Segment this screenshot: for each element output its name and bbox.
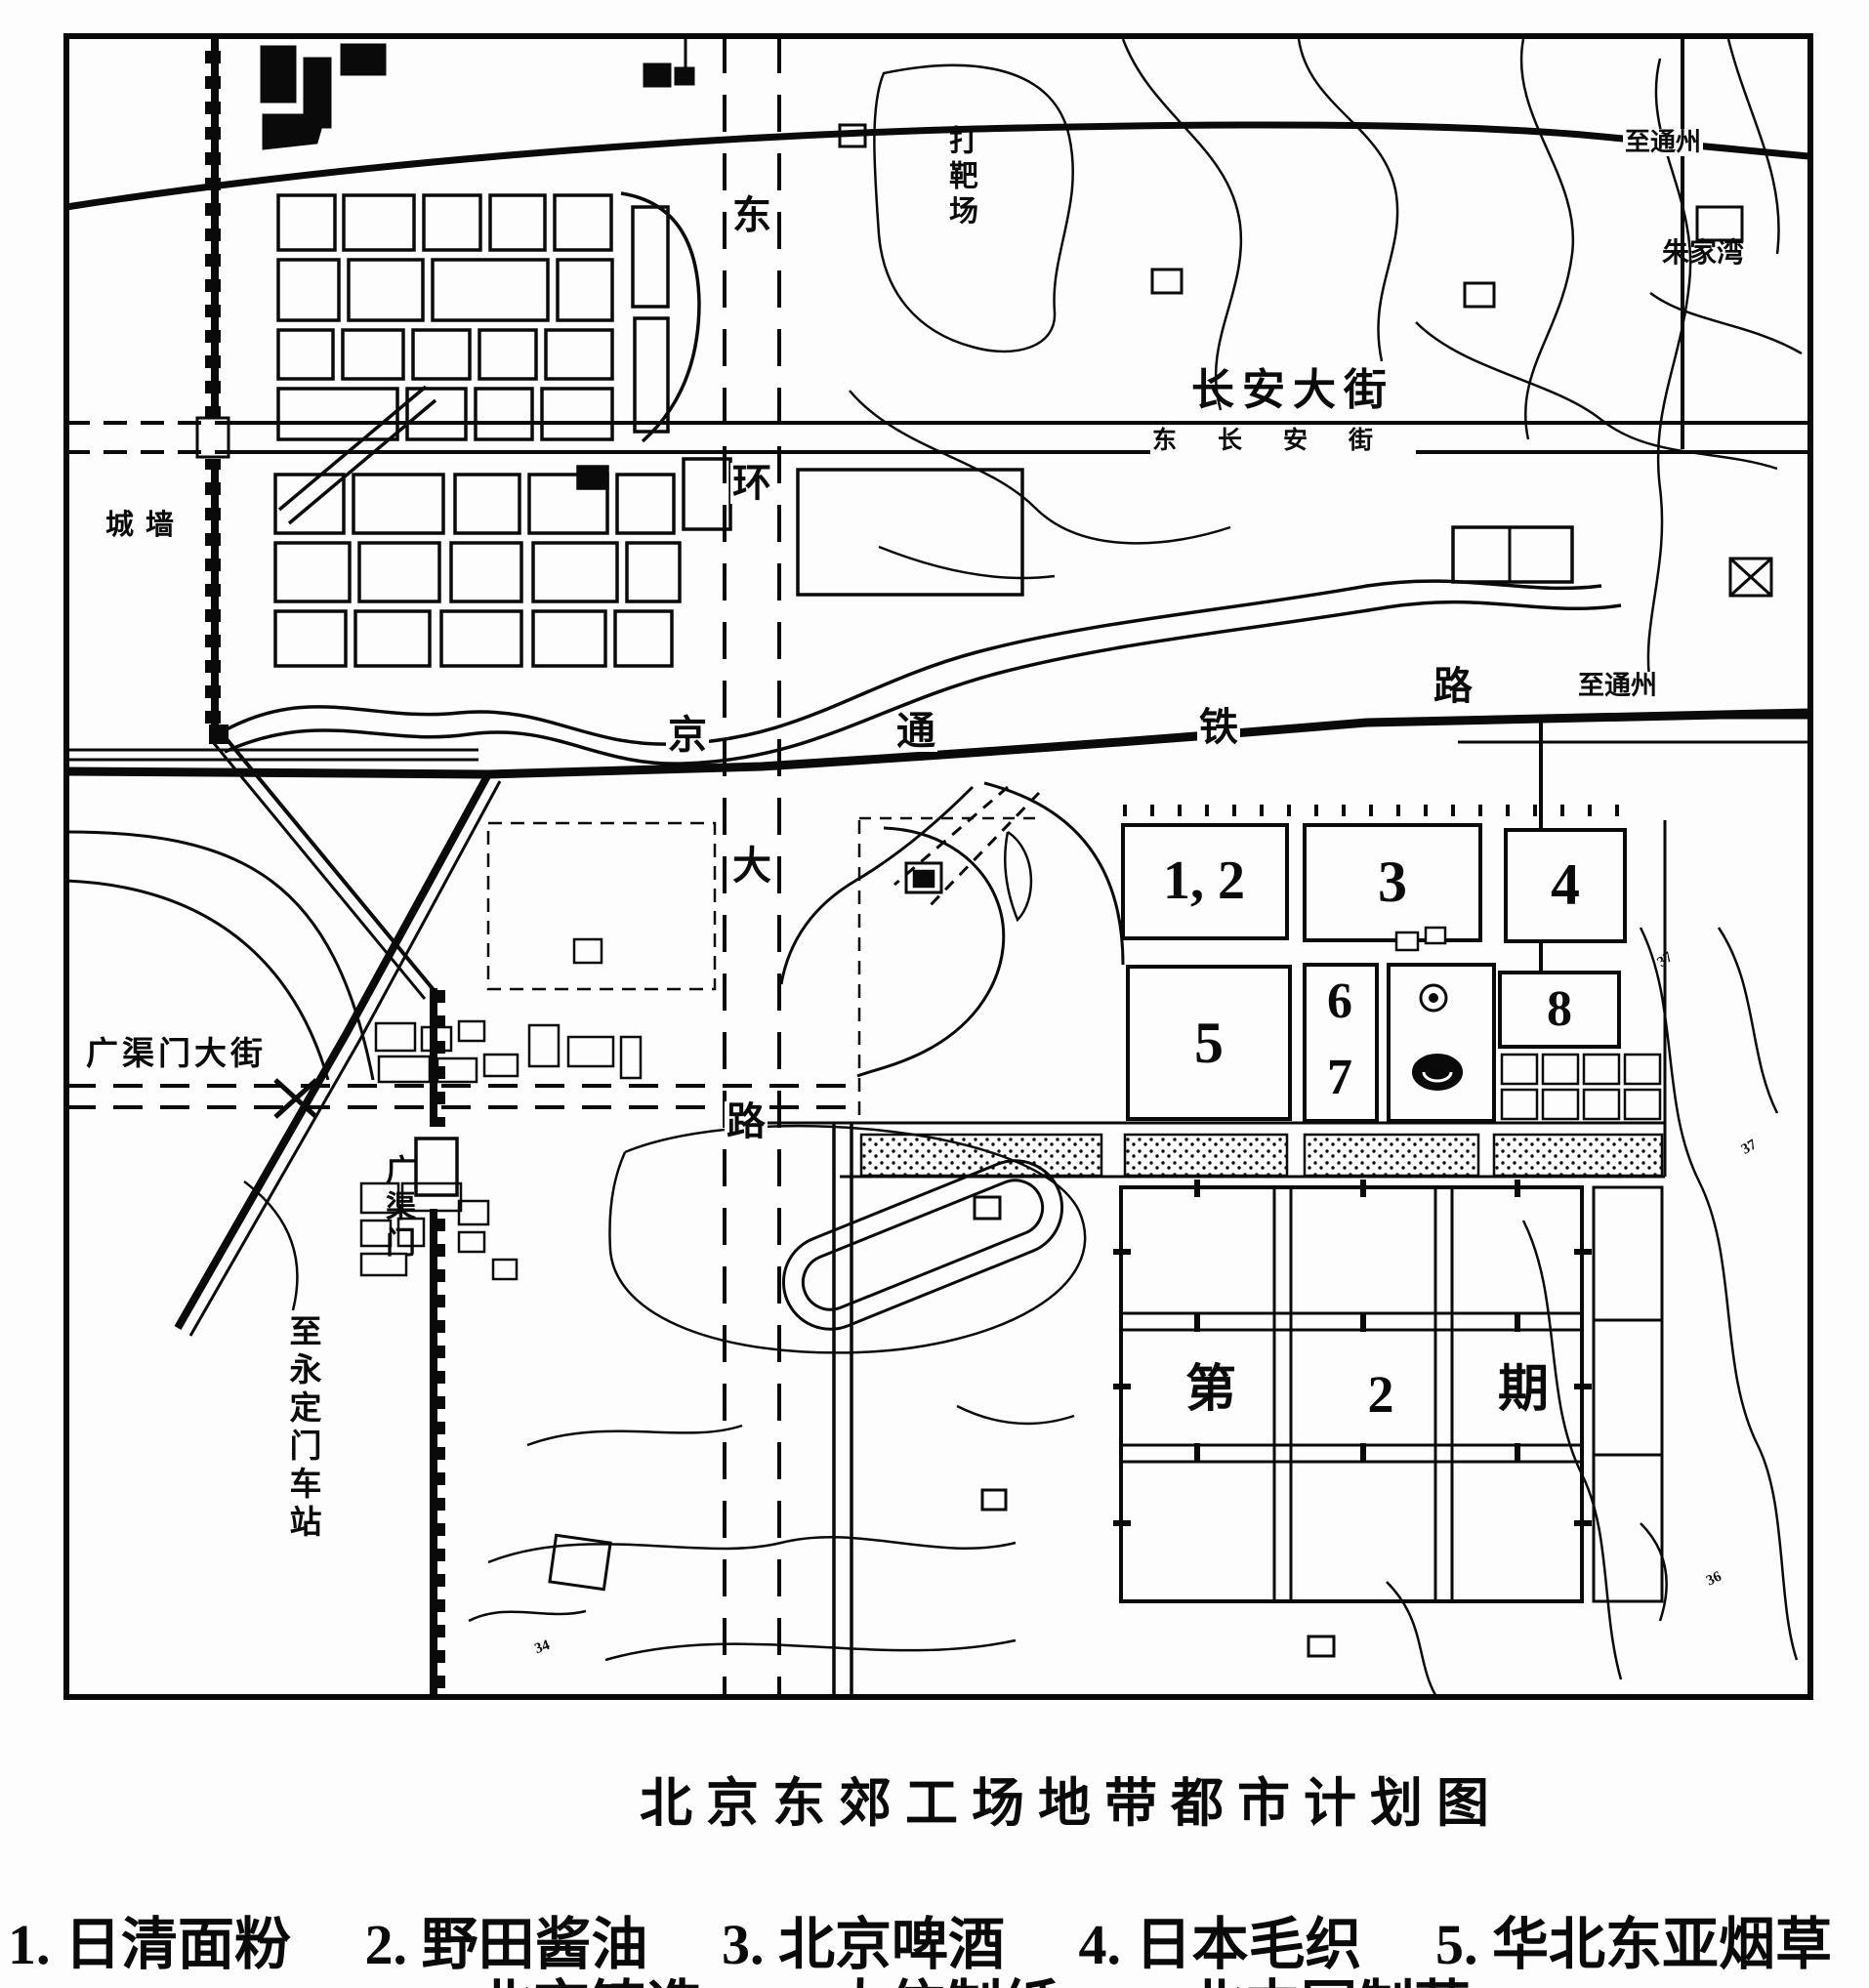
label-to-tongzhou-top: 至通州 [1623,129,1703,156]
label-zhujiawan: 朱家湾 [1662,240,1744,268]
label-changan-avenue: 长安大街 [1191,369,1394,412]
lot-number-6: 6 [1327,976,1352,1027]
label-railway-char-tong: 通 [894,711,937,752]
lot-number-1-2: 1, 2 [1163,853,1245,908]
legend-item-5: 5. 华北东亚烟草 [1435,1898,1832,1980]
legend-row-2: 6. 北京铸造 7. 大信制纸 8. 北中国制药 [420,1961,1471,1988]
lot-number-3: 3 [1378,852,1407,911]
label-guangqumen-avenue: 广渠门大街 [86,1039,267,1071]
label-ring-road-char-lu: 路 [725,1101,768,1142]
lot-number-7: 7 [1327,1053,1352,1103]
scanned-map-page: 至通州 朱家湾 长安大街 东长安街 城墙 打靶场 东 环 大 路 京 通 铁 路… [0,0,1869,1988]
phase2-char-qi: 期 [1498,1365,1549,1416]
phase2-char-di: 第 [1185,1365,1236,1416]
label-railway-char-lu: 路 [1432,666,1474,707]
legend-item-8: 8. 北中国制药 [1131,1961,1471,1988]
label-ring-road-char-dong: 东 [730,195,773,236]
label-guangqumen-gate: 广渠门 [383,1154,413,1263]
legend-item-7: 7. 大信制纸 [775,1961,1059,1988]
label-shooting-range: 打靶场 [945,125,975,230]
label-ring-road-char-huan: 环 [730,463,773,504]
label-ring-road-char-da: 大 [730,846,773,887]
label-to-yongdingmen-station: 至永定门车站 [285,1314,317,1543]
label-railway-char-tie: 铁 [1197,707,1240,748]
map-title: 北京东郊工场地带都市计划图 [640,1760,1503,1837]
lot-number-8: 8 [1547,984,1572,1035]
legend-item-6: 6. 北京铸造 [420,1961,703,1988]
legend-item-1: 1. 日清面粉 [8,1898,291,1980]
label-city-wall: 城墙 [105,512,186,540]
label-to-tongzhou-right: 至通州 [1576,672,1659,700]
label-east-changan-street: 东长安街 [1150,428,1416,454]
lot-number-5: 5 [1194,1014,1224,1072]
phase2-char-2: 2 [1368,1368,1394,1421]
lot-number-4: 4 [1551,855,1580,914]
label-railway-char-jing: 京 [666,715,709,756]
map-drawing [0,0,1869,1988]
